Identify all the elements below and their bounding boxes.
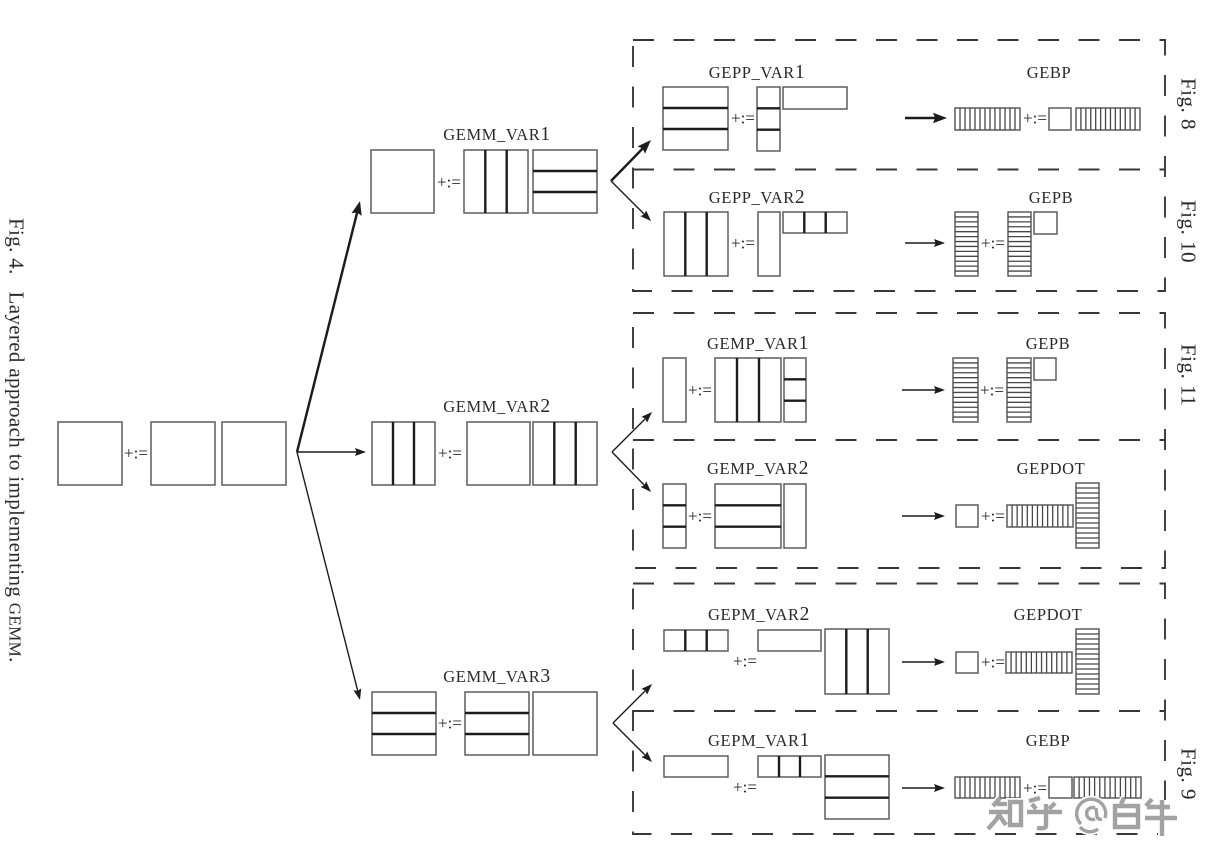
svg-text:GEPM_VAR1: GEPM_VAR1 [708,730,810,751]
svg-text:+:=: +:= [733,777,757,796]
svg-text:+:=: +:= [981,233,1005,252]
svg-text:GEMM_VAR2: GEMM_VAR2 [443,396,550,417]
svg-text:GEPP_VAR2: GEPP_VAR2 [709,187,805,208]
svg-text:GEPDOT: GEPDOT [1017,459,1086,478]
svg-text:+:=: +:= [981,506,1005,525]
svg-text:GEPB: GEPB [1029,188,1074,207]
svg-text:GEBP: GEBP [1027,63,1072,82]
svg-text:+:=: +:= [438,443,462,462]
svg-text:+:=: +:= [438,713,462,732]
svg-text:+:=: +:= [124,443,148,462]
svg-text:GEMM_VAR1: GEMM_VAR1 [443,124,550,145]
svg-text:GEBP: GEBP [1026,731,1071,750]
svg-text:Fig. 4. Layered approach to: Fig. 4. Layered approach to implementing… [5,218,29,663]
svg-text:GEPM_VAR2: GEPM_VAR2 [708,604,810,625]
svg-text:+:=: +:= [437,172,461,191]
svg-text:+:=: +:= [688,506,712,525]
svg-text:+:=: +:= [733,651,757,670]
svg-text:GEMM_VAR3: GEMM_VAR3 [443,666,550,687]
svg-text:+:=: +:= [1023,108,1047,127]
svg-text:Fig. 8: Fig. 8 [1177,78,1201,130]
svg-text:+:=: +:= [688,380,712,399]
svg-text:+:=: +:= [731,233,755,252]
svg-text:GEPP_VAR1: GEPP_VAR1 [709,62,805,83]
svg-text:+:=: +:= [731,108,755,127]
svg-text:+:=: +:= [1023,778,1047,797]
svg-text:GEPB: GEPB [1026,334,1071,353]
svg-text:GEPDOT: GEPDOT [1014,605,1083,624]
svg-text:Fig. 11: Fig. 11 [1177,344,1201,406]
svg-text:Fig. 9: Fig. 9 [1177,748,1201,800]
svg-text:+:=: +:= [980,380,1004,399]
svg-text:Fig. 10: Fig. 10 [1177,200,1201,263]
svg-text:+:=: +:= [981,652,1005,671]
svg-text:GEMP_VAR2: GEMP_VAR2 [707,458,809,479]
svg-text:GEMP_VAR1: GEMP_VAR1 [707,333,809,354]
